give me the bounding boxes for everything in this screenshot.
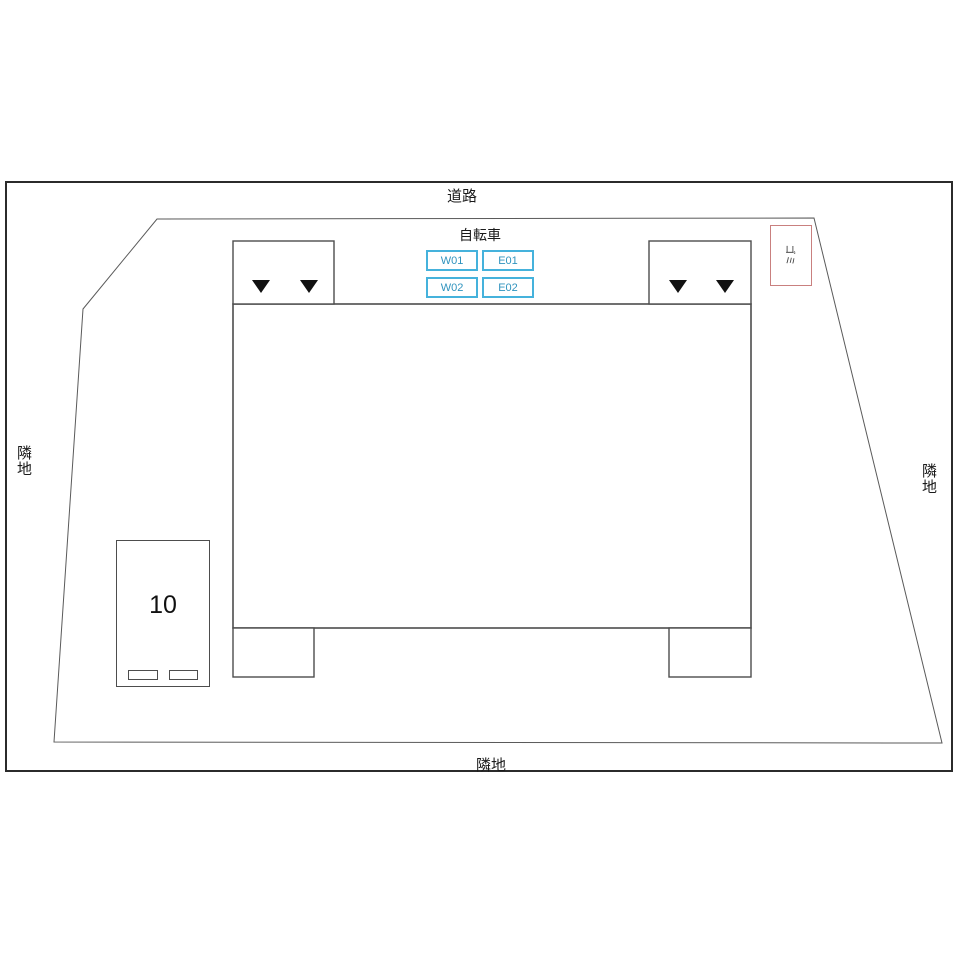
- entrance-marker-icon: [300, 280, 318, 293]
- entrance-marker-icon: [252, 280, 270, 293]
- neighbor-left-label: 隣地: [16, 446, 33, 478]
- building-outline: [233, 304, 751, 628]
- building-left-wing: [233, 241, 334, 304]
- bicycle-slot-w01[interactable]: W01: [426, 250, 478, 271]
- bicycle-slot-e01[interactable]: E01: [482, 250, 534, 271]
- site-plan-drawing: [0, 0, 960, 960]
- garbage-station-label: ゴミ: [784, 245, 799, 267]
- parking-stall-number: 10: [117, 591, 209, 620]
- bicycle-area-label: 自転車: [453, 225, 507, 245]
- bicycle-slot-e02[interactable]: E02: [482, 277, 534, 298]
- building-right-leg: [669, 628, 751, 677]
- wheel-stop: [169, 670, 198, 680]
- parking-stall-10: 10: [116, 540, 210, 687]
- entrance-marker-icon: [669, 280, 687, 293]
- neighbor-bottom-label: 隣地: [465, 754, 517, 775]
- garbage-station-box: ゴミ: [770, 225, 812, 286]
- site-plan-canvas: 道路 隣地 隣地 隣地 自転車 W01 E01 W02 E02 ゴミ 10: [0, 0, 960, 960]
- neighbor-right-label: 隣地: [921, 464, 938, 496]
- wheel-stop: [128, 670, 158, 680]
- building-right-wing: [649, 241, 751, 304]
- building-left-leg: [233, 628, 314, 677]
- bicycle-slot-w02[interactable]: W02: [426, 277, 478, 298]
- entrance-marker-icon: [716, 280, 734, 293]
- road-label: 道路: [438, 185, 486, 206]
